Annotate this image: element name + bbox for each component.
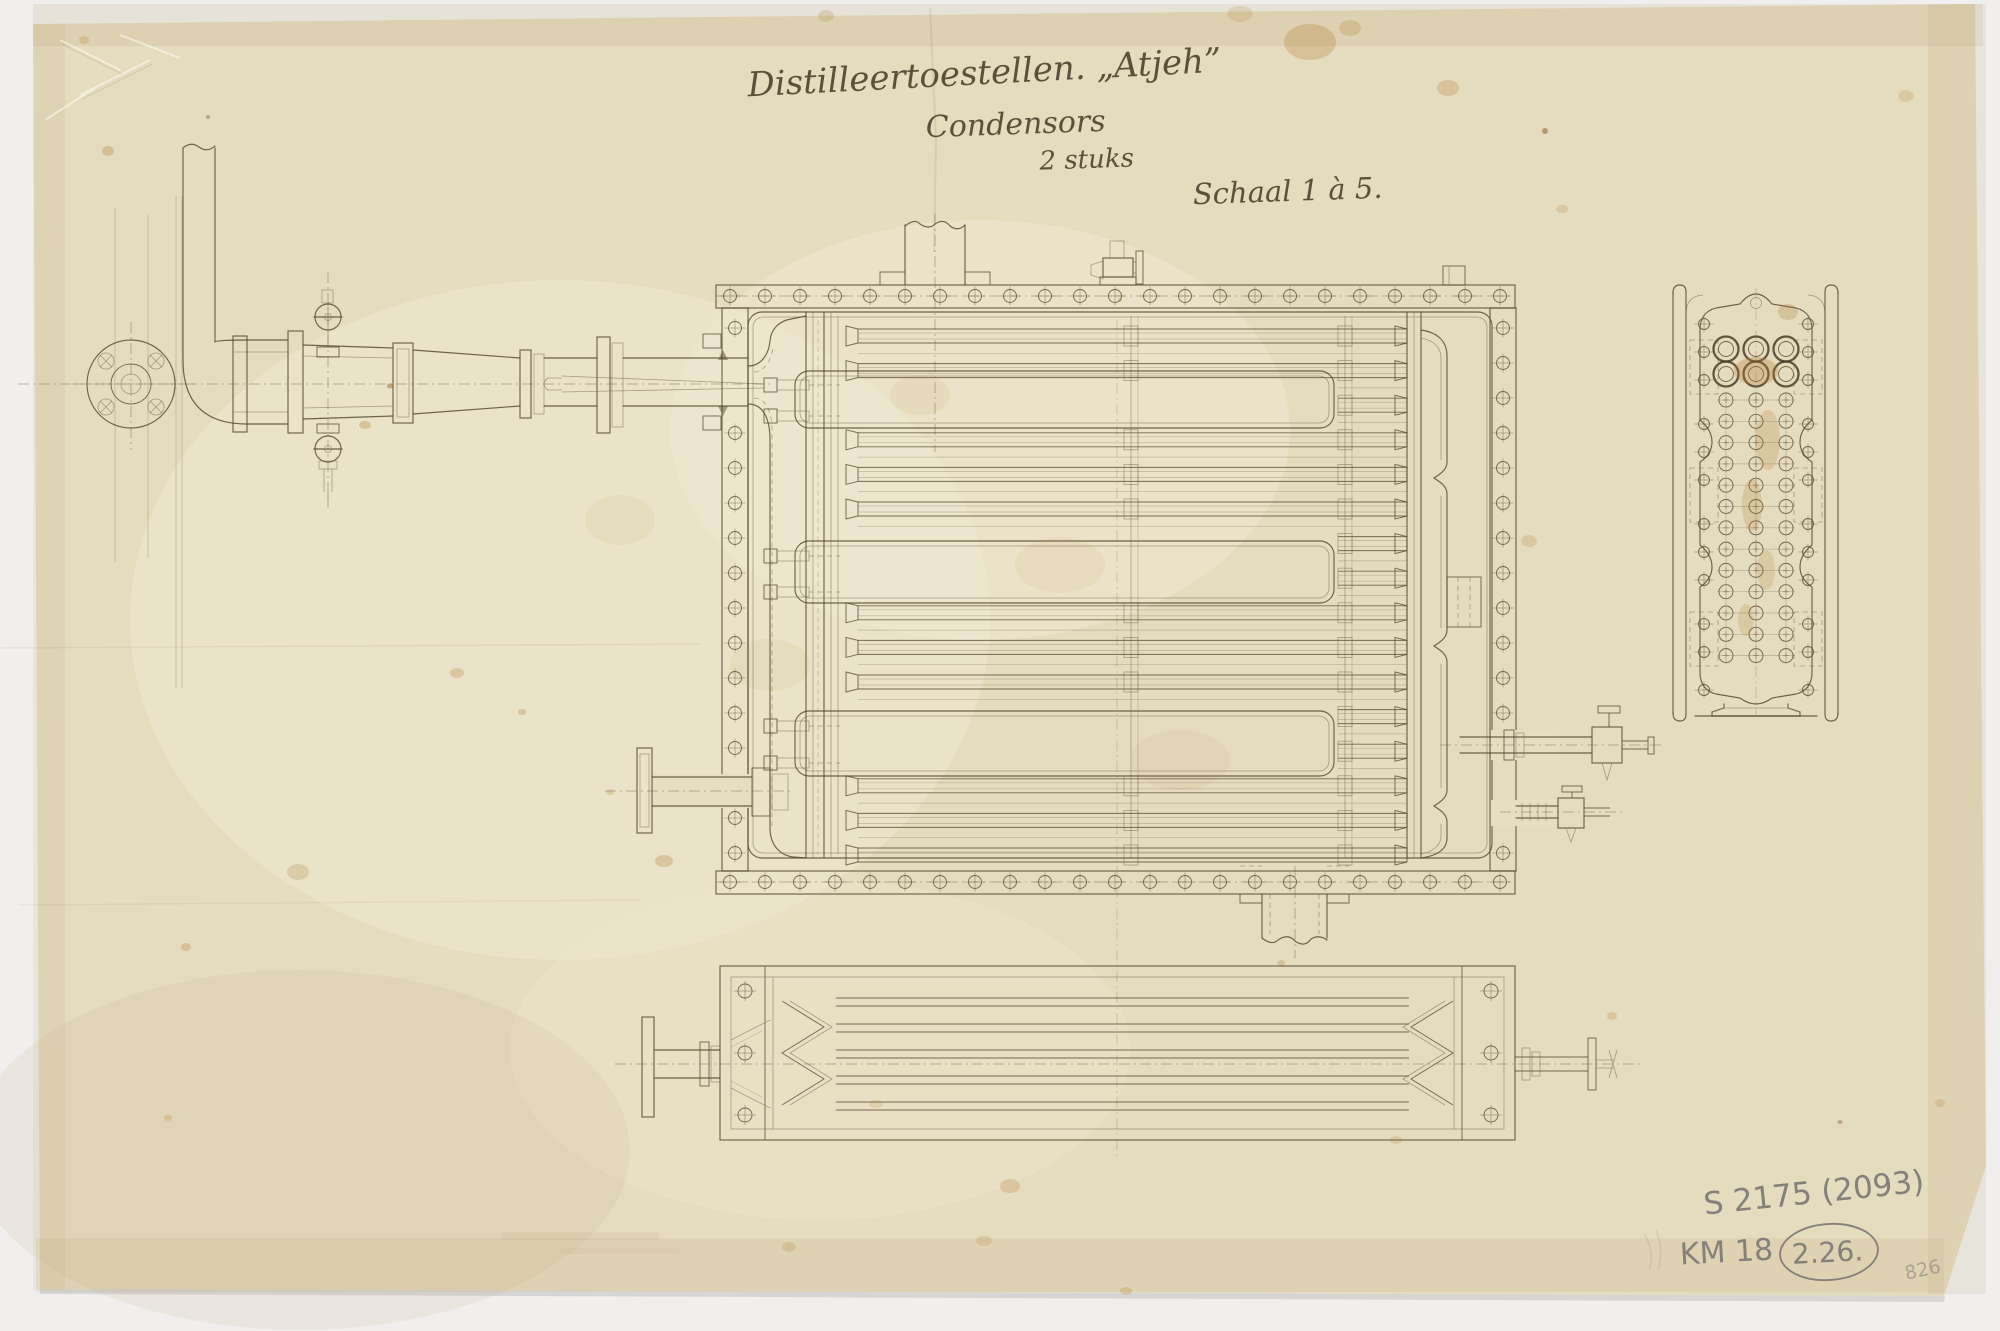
stain-spot xyxy=(181,943,191,951)
stain-spot xyxy=(1437,80,1459,96)
stain-spot xyxy=(450,668,464,678)
stain-spot xyxy=(79,36,89,44)
stain-spot xyxy=(1898,90,1914,102)
stain-spot xyxy=(1000,1179,1020,1193)
scanned-drawing: Distilleertoestellen. „Atjeh” Condensors… xyxy=(0,0,2000,1331)
stain-spot xyxy=(1339,20,1361,36)
stain-spot xyxy=(1521,535,1537,547)
stain-spot xyxy=(1935,1099,1945,1107)
stain-spot xyxy=(387,384,393,389)
stain-spot xyxy=(164,1115,172,1121)
stain-spot xyxy=(1118,298,1122,302)
stain-spot xyxy=(1778,304,1798,320)
scale-note: Schaal 1 à 5. xyxy=(1192,171,1383,212)
stain-spot xyxy=(518,709,526,715)
stain-spot xyxy=(655,855,673,867)
stain-spot xyxy=(890,375,950,415)
stain-spot xyxy=(585,495,655,545)
edge-tone xyxy=(33,4,1983,46)
stain-spot xyxy=(359,421,371,429)
stain-spot xyxy=(606,789,614,795)
paper-tone xyxy=(670,220,1290,640)
stain-spot xyxy=(287,864,309,880)
stain-spot xyxy=(1130,730,1230,790)
stain-spot xyxy=(782,1242,796,1252)
stain-spot xyxy=(1757,550,1775,590)
faded-stamp xyxy=(560,1248,680,1254)
stain-spot xyxy=(1838,1120,1843,1124)
collection-mark: KM 18 xyxy=(1679,1233,1774,1273)
stain-spot xyxy=(102,146,114,156)
stain-spot xyxy=(1120,1287,1132,1295)
stain-spot xyxy=(1542,128,1548,134)
edge-tone xyxy=(0,970,630,1330)
stain-spot xyxy=(1015,537,1105,593)
stain-spot xyxy=(1390,1136,1402,1144)
stain-spot xyxy=(1742,479,1762,531)
stain-spot xyxy=(869,1100,883,1108)
stain-spot xyxy=(1556,205,1568,213)
paper-sheet xyxy=(0,4,1986,1330)
subtitle-condensors: Condensors xyxy=(925,104,1106,145)
stain-spot xyxy=(1277,960,1285,966)
stain-spot xyxy=(1227,6,1253,22)
stain-spot xyxy=(206,115,210,119)
scan-canvas: Distilleertoestellen. „Atjeh” Condensors… xyxy=(0,0,2000,1331)
stain-spot xyxy=(1738,604,1754,636)
stain-spot xyxy=(1756,410,1780,470)
circled-mark: 2.26. xyxy=(1791,1234,1864,1271)
quantity-note: 2 stuks xyxy=(1038,143,1134,176)
stain-spot xyxy=(1734,357,1778,385)
stain-spot xyxy=(818,10,834,22)
stain-spot xyxy=(730,639,810,691)
stain-spot xyxy=(1607,1012,1617,1020)
faded-stamp xyxy=(500,1232,660,1240)
stain-spot xyxy=(976,1236,992,1246)
stain-spot xyxy=(1284,24,1336,60)
